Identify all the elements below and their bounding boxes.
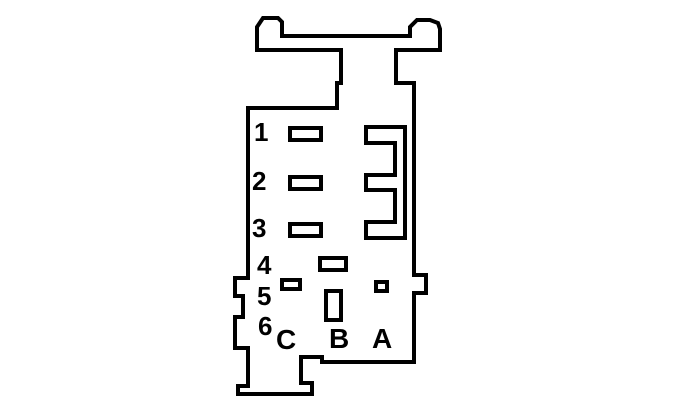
- slot-col-a-square: [376, 282, 387, 291]
- row-label-3: 3: [252, 213, 266, 243]
- row-label-1: 1: [254, 117, 268, 147]
- bracket-slot-col-a-rows-1-3: [366, 127, 405, 238]
- connector-diagram: 1 2 3 4 5 6 C B A: [0, 0, 677, 414]
- row-label-6: 6: [258, 311, 272, 341]
- diagram-canvas: 1 2 3 4 5 6 C B A: [0, 0, 677, 414]
- row-label-2: 2: [252, 166, 266, 196]
- slot-row-5-left: [282, 280, 300, 289]
- col-label-a: A: [372, 323, 392, 354]
- column-labels: C B A: [276, 323, 392, 355]
- col-label-c: C: [276, 324, 296, 355]
- slot-row-4: [320, 258, 346, 270]
- col-label-b: B: [329, 323, 349, 354]
- slot-col-b-vertical: [326, 291, 341, 320]
- row-label-4: 4: [257, 250, 272, 280]
- slot-row-3: [290, 224, 321, 236]
- row-label-5: 5: [257, 281, 271, 311]
- slot-row-1: [290, 128, 321, 140]
- slot-row-2: [290, 177, 321, 189]
